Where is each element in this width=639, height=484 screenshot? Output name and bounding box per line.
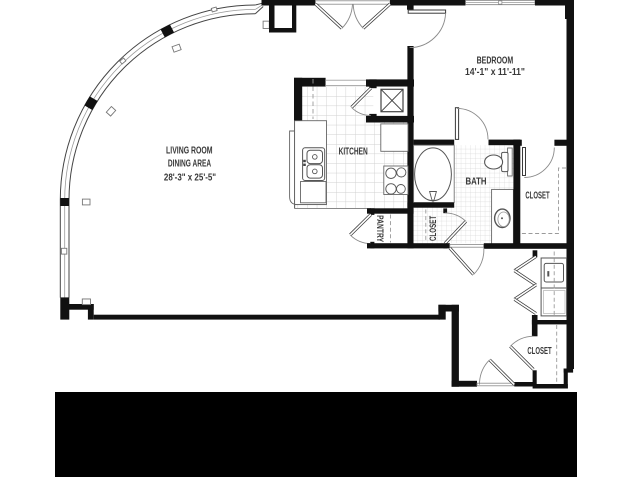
svg-text:28'-3" x 25'-5": 28'-3" x 25'-5" (164, 173, 216, 184)
svg-text:PANTRY: PANTRY (375, 215, 385, 242)
svg-text:CLOSET: CLOSET (428, 215, 438, 241)
svg-text:CLOSET: CLOSET (525, 190, 549, 201)
svg-text:14'-1" x 11'-11": 14'-1" x 11'-11" (465, 67, 525, 78)
svg-text:BEDROOM: BEDROOM (477, 55, 514, 66)
svg-text:LIVING ROOM: LIVING ROOM (166, 145, 213, 156)
svg-text:CLOSET: CLOSET (527, 346, 551, 357)
svg-text:DINING AREA: DINING AREA (168, 159, 211, 170)
svg-text:BATH: BATH (466, 176, 487, 187)
svg-text:KITCHEN: KITCHEN (339, 146, 368, 157)
